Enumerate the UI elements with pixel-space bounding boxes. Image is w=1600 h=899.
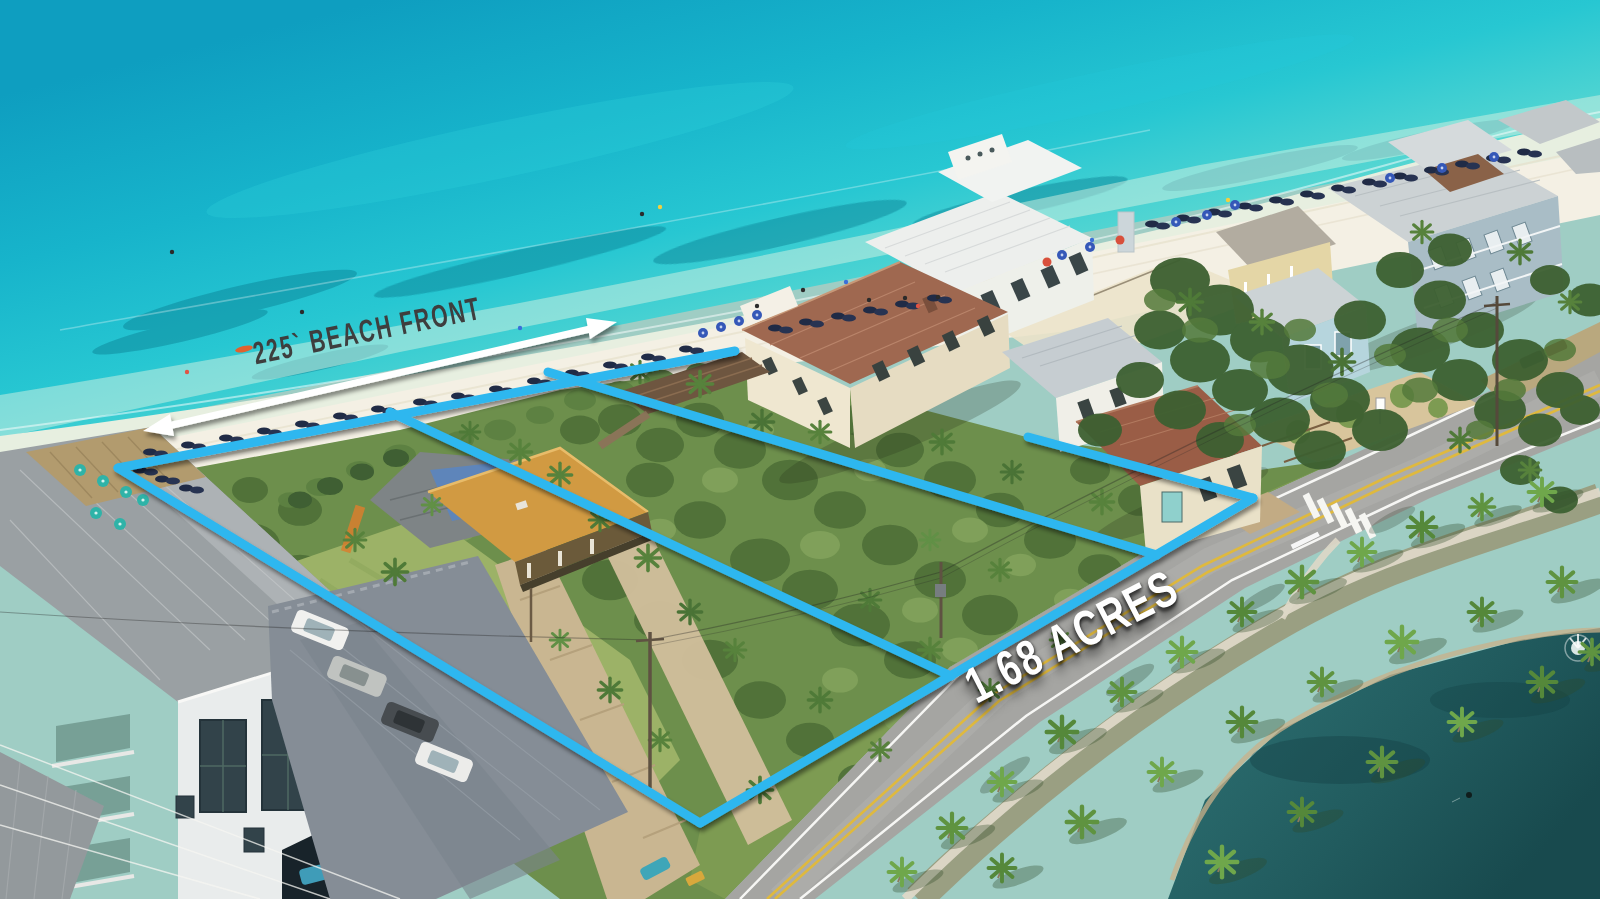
aerial-property-photo: 225` BEACH FRONT 1.68 ACRES	[0, 0, 1600, 899]
aerial-scene	[0, 0, 1600, 899]
